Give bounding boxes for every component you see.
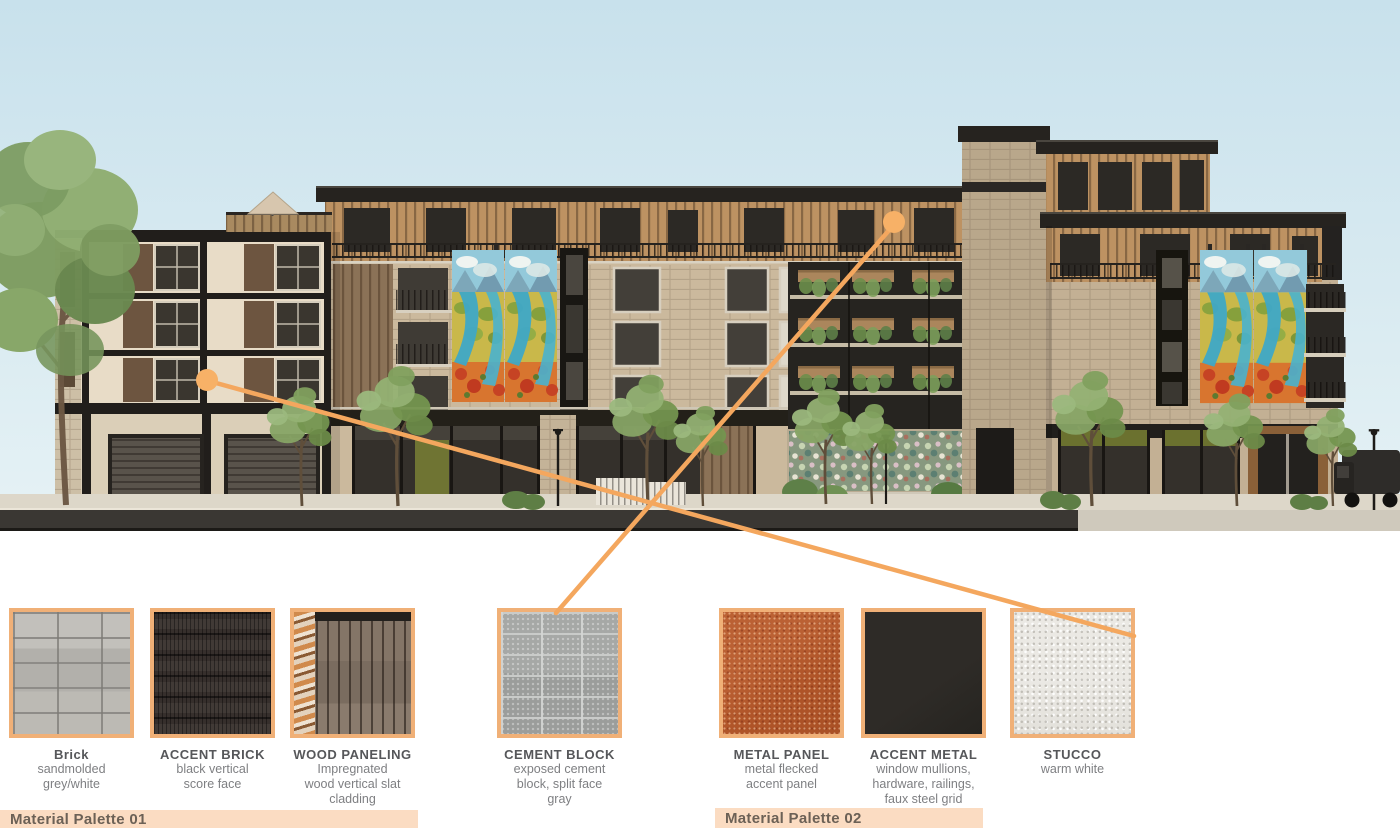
accent-metal-swatch-image <box>861 608 986 738</box>
mural-artwork-right <box>1200 244 1308 403</box>
material-description: metal flecked accent panel <box>701 762 862 792</box>
palette-label: Material Palette 02 <box>715 810 862 827</box>
material-metal-panel: METAL PANEL metal flecked accent panel <box>719 608 844 792</box>
material-name: CEMENT BLOCK <box>497 747 622 762</box>
building-rendering <box>0 0 1400 540</box>
material-description: black vertical score face <box>132 762 293 792</box>
material-wood-paneling: WOOD PANELING Impregnated wood vertical … <box>290 608 415 807</box>
material-brick: Brick sandmolded grey/white <box>9 608 134 792</box>
cement-block-swatch-image <box>497 608 622 738</box>
accent-brick-swatch-image <box>150 608 275 738</box>
material-palette-02-bar: Material Palette 02 <box>715 808 983 828</box>
stucco-swatch-image <box>1010 608 1135 738</box>
material-description: Impregnated wood vertical slat cladding <box>272 762 433 807</box>
material-palette-board: Brick sandmolded grey/white ACCENT BRICK… <box>0 0 1400 828</box>
mural-artwork-center <box>452 244 558 402</box>
brick-swatch-image <box>9 608 134 738</box>
material-name: Brick <box>9 747 134 762</box>
white-slat-planter <box>596 478 686 505</box>
palette-label: Material Palette 01 <box>0 811 147 828</box>
material-description: window mullions, hardware, railings, fau… <box>843 762 1004 807</box>
material-name: ACCENT METAL <box>861 747 986 762</box>
material-description: sandmolded grey/white <box>0 762 152 792</box>
metal-panel-swatch-image <box>719 608 844 738</box>
material-description: exposed cement block, split face gray <box>479 762 640 807</box>
material-name: STUCCO <box>1010 747 1135 762</box>
wood-paneling-swatch-image <box>290 608 415 738</box>
material-name: METAL PANEL <box>719 747 844 762</box>
material-accent-brick: ACCENT BRICK black vertical score face <box>150 608 275 792</box>
right-setback-floor <box>1036 140 1218 216</box>
material-description: warm white <box>992 762 1153 777</box>
right-building <box>1040 212 1346 510</box>
material-palette-01-bar: Material Palette 01 <box>0 810 418 828</box>
courtyard-balconies <box>782 262 984 507</box>
street <box>0 494 1400 531</box>
material-name: ACCENT BRICK <box>150 747 275 762</box>
material-stucco: STUCCO warm white <box>1010 608 1135 777</box>
material-cement-block: CEMENT BLOCK exposed cement block, split… <box>497 608 622 807</box>
material-name: WOOD PANELING <box>290 747 415 762</box>
material-accent-metal: ACCENT METAL window mullions, hardware, … <box>861 608 986 807</box>
